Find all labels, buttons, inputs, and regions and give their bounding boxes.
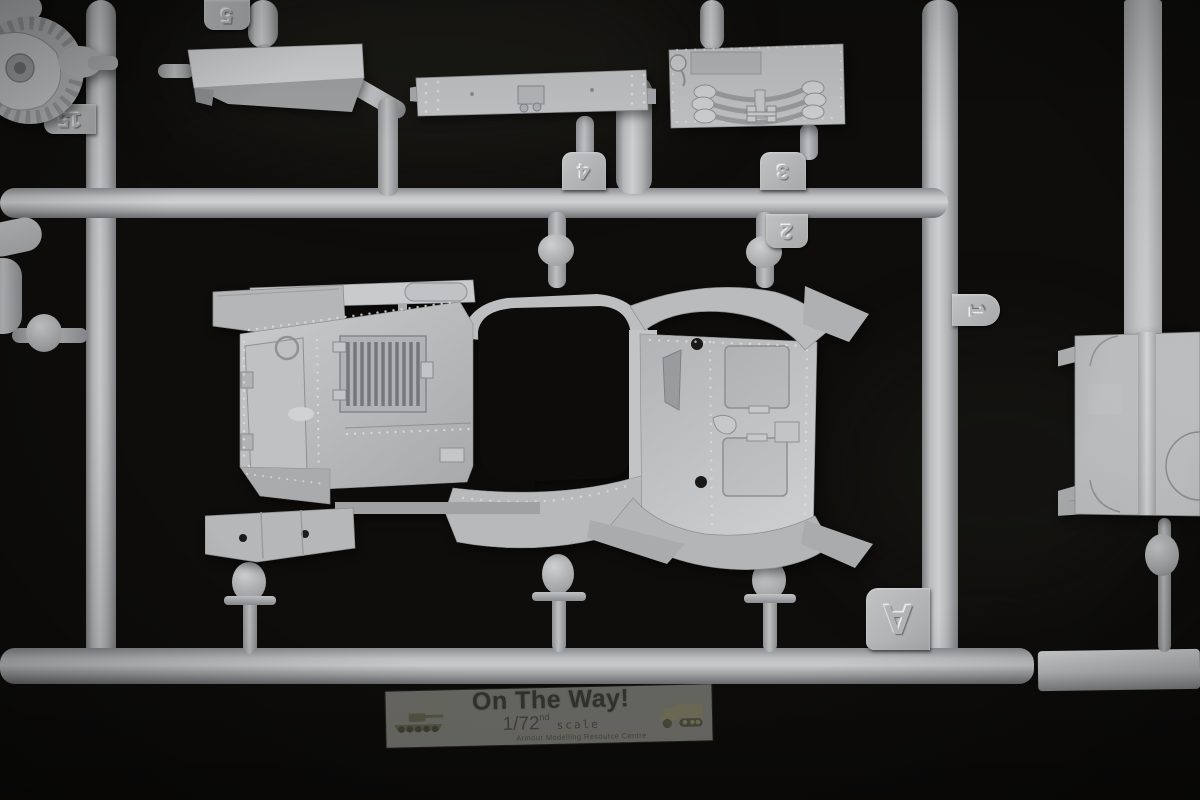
sprue-runner-bottom-right-segment	[1038, 649, 1200, 691]
watermark-text-block: On The Way! 1/72ndscale Armour Modelling…	[455, 686, 647, 744]
part-number-1: 1	[964, 304, 988, 316]
part-cable-plate	[663, 40, 851, 136]
part-small-oval	[0, 214, 45, 259]
sprue-gate-bottom-3-fins	[744, 594, 796, 603]
part-number-4: 4	[578, 159, 590, 183]
part-number-tab-5: 5	[204, 0, 250, 30]
part-number-tab-4: 4	[562, 152, 606, 190]
sprue-gate-bottom-1-fins	[224, 596, 276, 605]
part-number-3: 3	[777, 159, 789, 183]
watermark-scale-line: 1/72ndscale	[502, 713, 600, 734]
watermark-halftrack-icon	[656, 693, 709, 732]
sprue-gate-bottom-2-fins	[532, 592, 586, 601]
part-right-hull-section	[1058, 328, 1200, 523]
part-number-tab-1: 1	[952, 294, 1000, 326]
part-number-5: 5	[221, 3, 233, 27]
part-small-cylinder	[0, 258, 22, 334]
watermark-subtitle: Armour Modelling Resource Centre	[516, 732, 646, 742]
sprue-letter-tab-A: A	[866, 588, 930, 650]
sprue-bulb-hull-top-left	[538, 234, 574, 266]
part-wedge-box	[182, 40, 367, 120]
sprue-runner-right-vertical	[1124, 0, 1162, 342]
sprue-gate-right-part-ball	[1145, 534, 1179, 576]
watermark-tank-icon	[390, 700, 447, 737]
part-riveted-plate	[410, 64, 656, 122]
watermark-title: On The Way!	[472, 686, 630, 715]
sprue-bulb-left-parts	[26, 314, 62, 352]
watermark-scale-word: scale	[557, 719, 600, 731]
sprue-photo: 5 15 4 3 2 1 A	[0, 0, 1200, 800]
part-number-tab-2: 2	[766, 214, 808, 248]
sprue-runner-middle-vertical	[922, 0, 958, 662]
sprue-runner-bottom-horizontal	[0, 648, 1034, 684]
watermark-scale-suffix: nd	[539, 713, 549, 722]
sprue-letter-A: A	[883, 595, 913, 643]
part-number-2: 2	[781, 219, 793, 243]
part-armored-car-hull	[205, 276, 895, 591]
part-number-tab-3: 3	[760, 152, 806, 190]
watermark-scale: 1/72	[502, 714, 539, 734]
part-wheel-assembly	[0, 0, 118, 135]
watermark-banner: On The Way! 1/72ndscale Armour Modelling…	[385, 684, 712, 747]
sprue-gate-wedge-vertical	[378, 98, 398, 196]
